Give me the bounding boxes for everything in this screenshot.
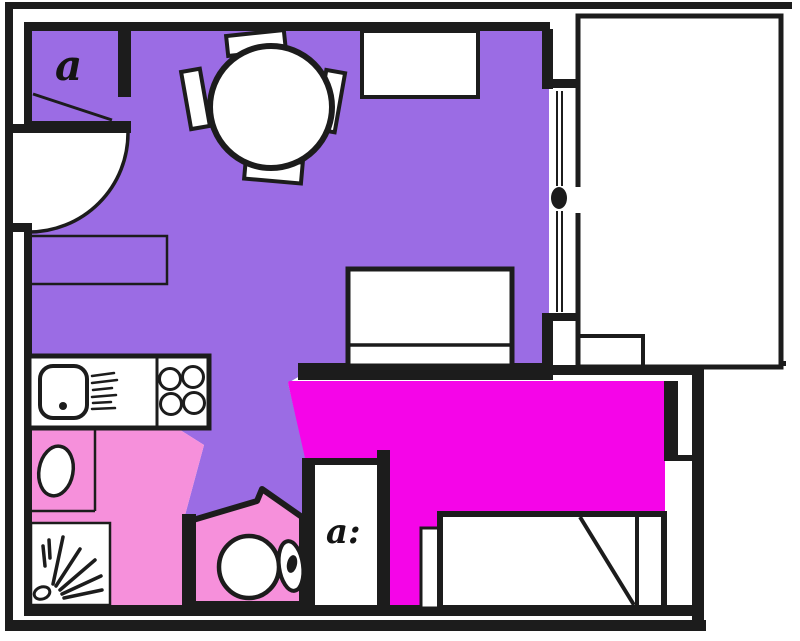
wc-door-lintel: [302, 458, 390, 465]
balcony: [573, 16, 781, 367]
bath-wc-wall: [182, 514, 196, 606]
shower: [31, 523, 110, 605]
burner: [184, 393, 205, 414]
wall-left-inner-upper: [24, 22, 32, 133]
balcony-door-opening: [573, 187, 583, 213]
dining-table: [210, 46, 332, 168]
burner: [160, 369, 181, 390]
toilet: [219, 536, 306, 598]
bed: [440, 514, 664, 608]
kitchen-counter: [29, 356, 209, 428]
kitchen-sink: [40, 366, 87, 418]
wall-stub-balcony-top: [542, 79, 578, 88]
wall-right-outer: [692, 367, 704, 631]
wc-door-label: a:: [326, 512, 361, 552]
wall-bottom-outer: [5, 620, 706, 631]
balcony-outline: [578, 16, 781, 367]
bed-group: [421, 514, 664, 608]
bedroom-door-threshold: [664, 455, 698, 461]
balcony-door: [551, 91, 567, 312]
sink-drain: [59, 402, 67, 410]
burner: [161, 394, 182, 415]
hall-partition-wall: [118, 29, 131, 97]
floor-plan: a a:: [0, 0, 800, 641]
entrance-jamb-bottom: [5, 223, 32, 232]
window-sideboard: [362, 31, 478, 97]
sofa: [348, 269, 512, 366]
bedroom-right-wall: [664, 381, 678, 455]
burner: [183, 367, 204, 388]
wall-left-outer: [5, 2, 13, 631]
floor-plan-drawing: a a:: [0, 0, 800, 641]
sofa-body: [348, 269, 512, 366]
wc-door-jamb-left: [302, 458, 315, 608]
toilet-bowl: [219, 536, 279, 598]
wall-top-outer: [5, 2, 792, 9]
wc-door-jamb-right: [377, 450, 390, 608]
hall-label: a: [55, 41, 82, 90]
door-handle-icon: [551, 187, 567, 209]
hall-bottom-wall: [28, 121, 131, 133]
entrance-jamb-top: [5, 124, 32, 133]
